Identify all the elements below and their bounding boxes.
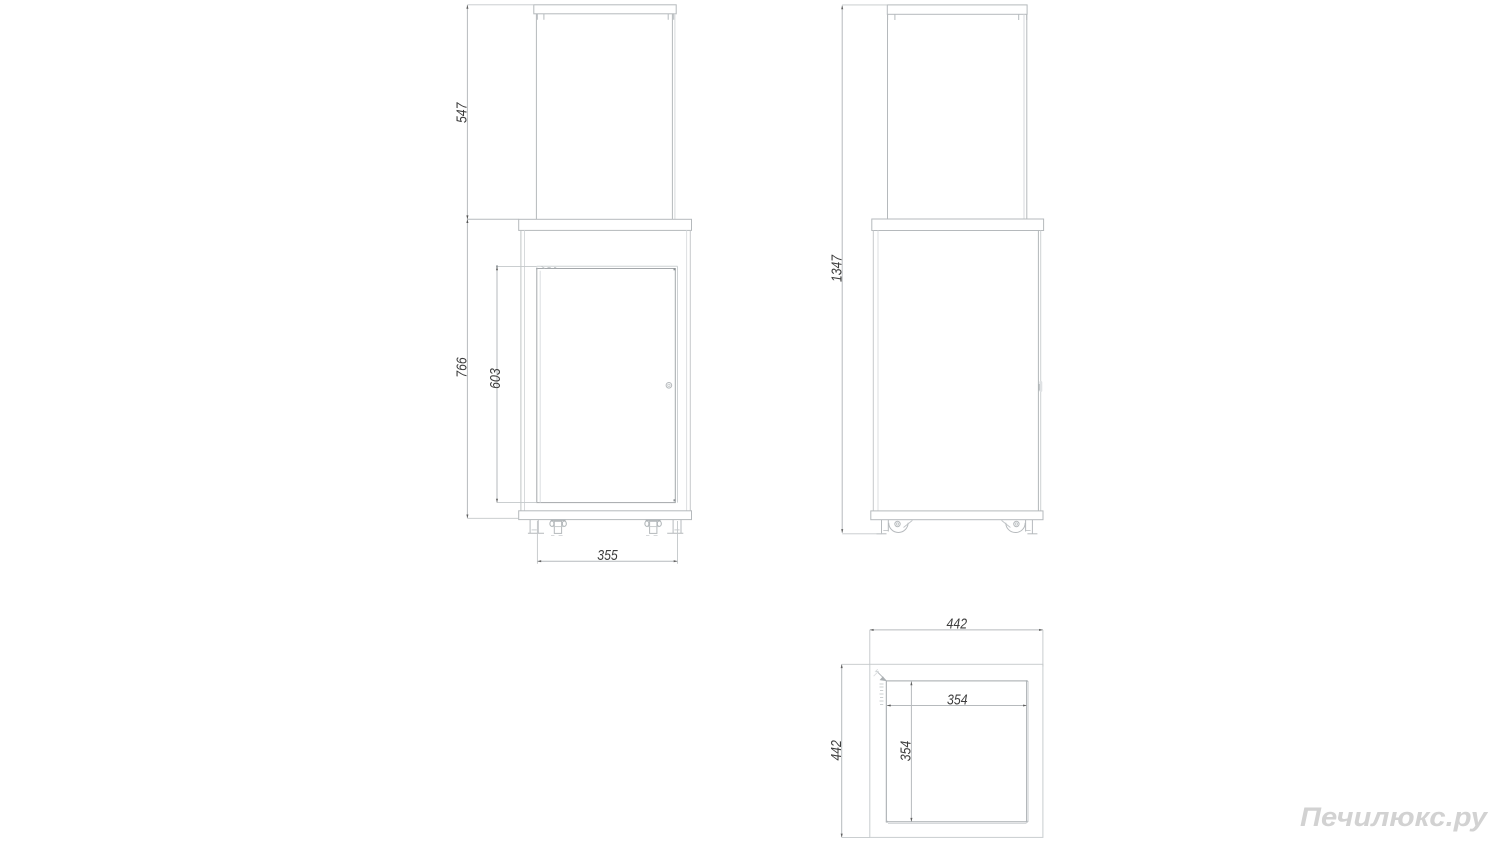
- svg-text:354: 354: [947, 691, 968, 708]
- svg-text:442: 442: [947, 616, 968, 633]
- svg-text:603: 603: [487, 368, 504, 389]
- svg-text:Печилюкс.ру: Печилюкс.ру: [1300, 802, 1489, 832]
- svg-text:766: 766: [454, 357, 471, 378]
- svg-text:354: 354: [898, 741, 915, 762]
- svg-text:547: 547: [454, 102, 471, 123]
- svg-text:1347: 1347: [828, 254, 845, 282]
- svg-text:442: 442: [828, 740, 845, 761]
- svg-text:355: 355: [597, 547, 618, 564]
